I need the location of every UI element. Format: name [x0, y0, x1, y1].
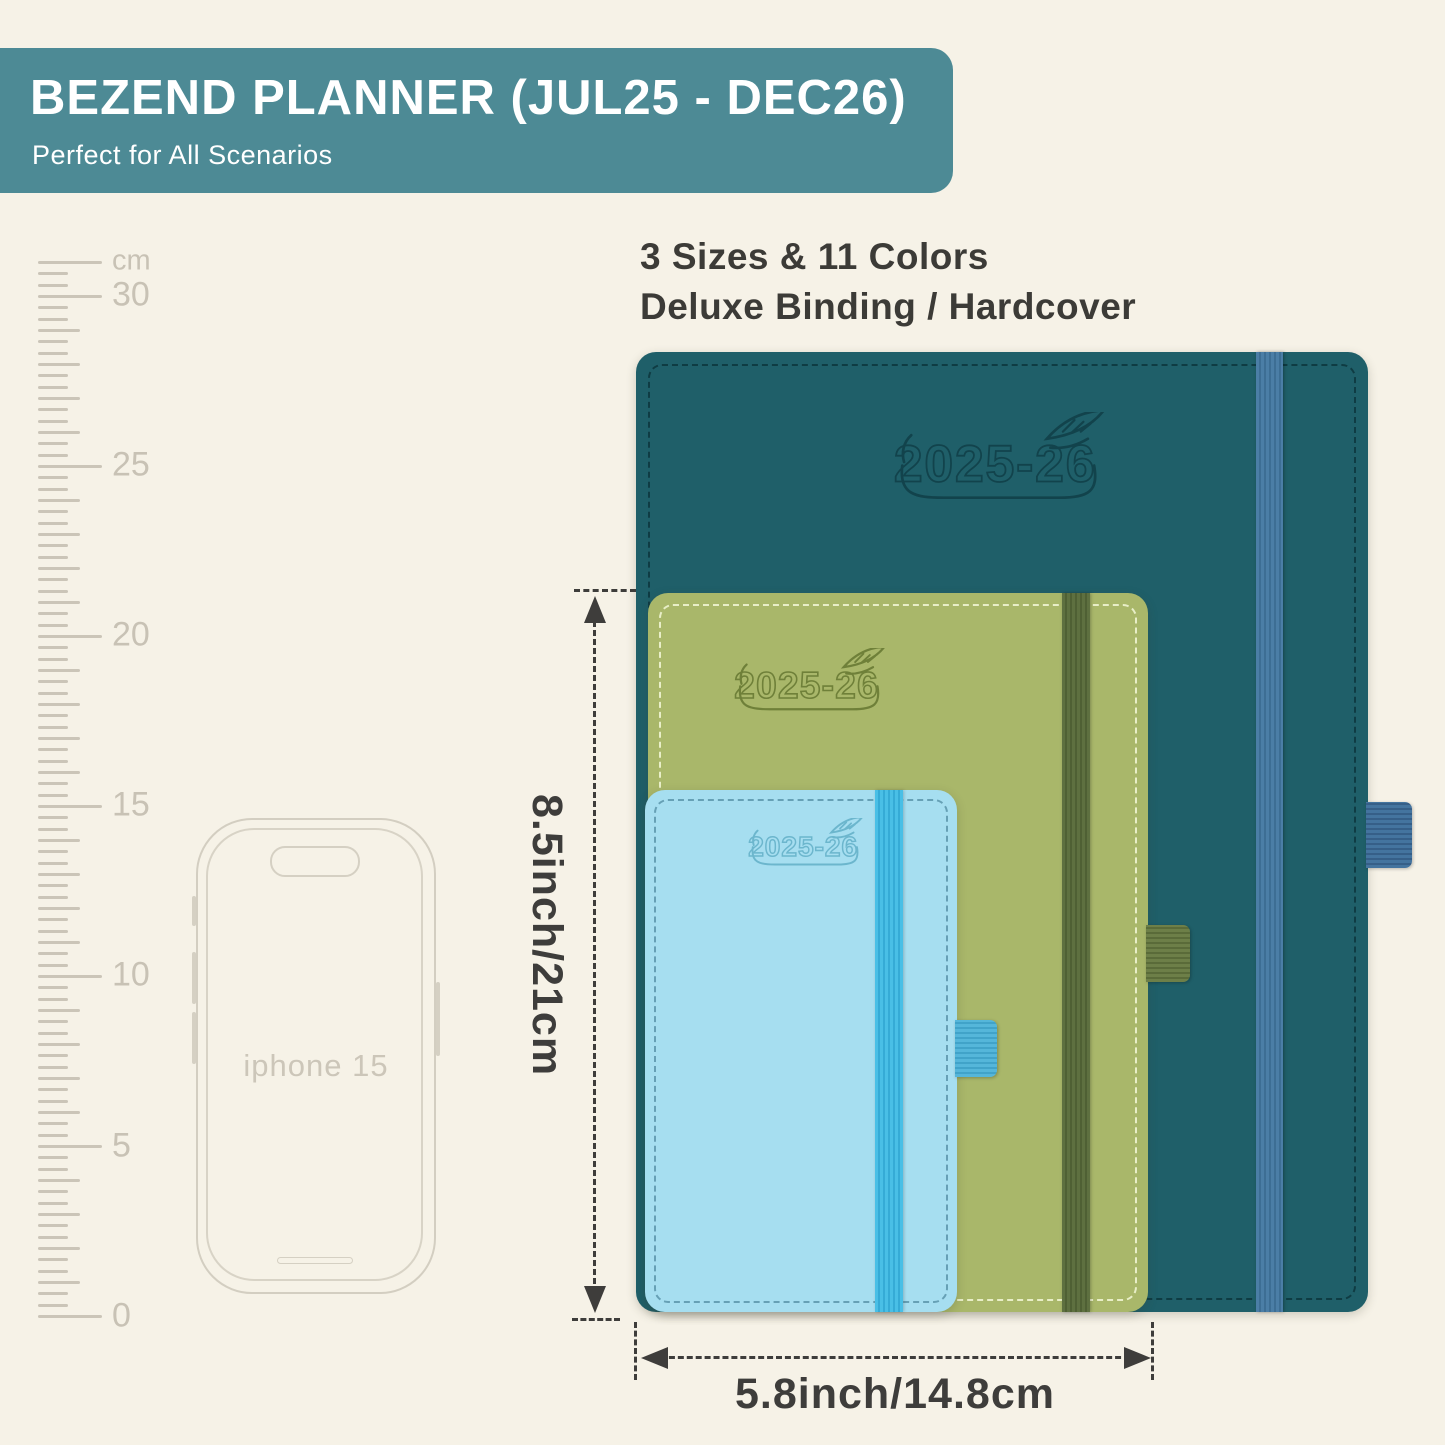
ruler-tick [38, 1315, 102, 1318]
ruler-tick [38, 476, 68, 479]
ruler-tick [38, 578, 68, 581]
ruler-tick [38, 964, 68, 967]
ruler-tick [38, 1270, 68, 1273]
ruler-tick [38, 397, 80, 400]
ruler-tick [38, 1304, 68, 1307]
ruler-tick [38, 1043, 80, 1046]
ruler-tick [38, 635, 102, 638]
ruler-tick [38, 714, 68, 717]
ruler-tick [38, 408, 68, 411]
ruler-tick [38, 930, 68, 933]
ruler-label-0: 0 [112, 1297, 131, 1336]
ruler-label-20: 20 [112, 616, 150, 655]
phone-volume-down-button [192, 1012, 196, 1064]
ruler-label-10: 10 [112, 956, 150, 995]
logo-year: 2025-26 [748, 831, 858, 862]
ruler-tick [38, 465, 102, 468]
ruler: cm302520151050 [0, 0, 200, 1445]
ruler-tick [38, 760, 68, 763]
height-dim-line [593, 612, 596, 1302]
ruler-tick [38, 748, 68, 751]
ruler-tick [38, 1122, 68, 1125]
ruler-tick [38, 703, 80, 706]
ruler-tick [38, 567, 80, 570]
ruler-tick [38, 1156, 68, 1159]
ruler-tick [38, 850, 68, 853]
planner-logo: 2025-26 [730, 648, 896, 714]
ruler-tick [38, 386, 68, 389]
ruler-tick [38, 306, 68, 309]
ruler-tick [38, 828, 68, 831]
ruler-label-cm: cm [112, 245, 151, 278]
elastic-band [1062, 593, 1090, 1312]
ruler-tick [38, 918, 68, 921]
ruler-tick [38, 896, 68, 899]
logo-year: 2025-26 [734, 664, 879, 706]
ruler-tick [38, 998, 68, 1001]
phone-label: iphone 15 [198, 1048, 434, 1084]
ruler-tick [38, 737, 80, 740]
ruler-tick [38, 510, 68, 513]
ruler-tick [38, 318, 68, 321]
ruler-tick [38, 533, 80, 536]
height-dim-bottom-tick [572, 1318, 620, 1321]
width-dim-label: 5.8inch/14.8cm [695, 1370, 1095, 1419]
ruler-tick [38, 1213, 80, 1216]
ruler-tick [38, 1134, 68, 1137]
logo-year: 2025-26 [894, 435, 1096, 493]
ruler-tick [38, 352, 68, 355]
ruler-tick [38, 1032, 68, 1035]
ruler-tick [38, 363, 80, 366]
ruler-tick [38, 1236, 68, 1239]
ruler-tick [38, 1100, 68, 1103]
ruler-tick [38, 1020, 68, 1023]
ruler-tick [38, 941, 80, 944]
ruler-tick [38, 442, 68, 445]
width-dim-left-tick [634, 1322, 637, 1380]
ruler-tick [38, 556, 68, 559]
width-dim-line [660, 1356, 1130, 1359]
ruler-tick [38, 420, 68, 423]
ruler-tick [38, 544, 68, 547]
ruler-tick [38, 601, 80, 604]
ruler-tick [38, 590, 68, 593]
product-image-canvas: BEZEND PLANNER (JUL25 - DEC26) Perfect f… [0, 0, 1445, 1445]
stitching [654, 799, 948, 1303]
ruler-tick [38, 1009, 80, 1012]
ruler-tick [38, 272, 68, 275]
ruler-tick [38, 726, 68, 729]
phone-home-bar [277, 1257, 353, 1264]
ruler-label-15: 15 [112, 786, 150, 825]
ruler-tick [38, 1190, 68, 1193]
ruler-tick [38, 1077, 80, 1080]
ruler-tick [38, 873, 80, 876]
ruler-tick [38, 261, 102, 264]
phone-dynamic-island [270, 846, 360, 877]
ruler-tick [38, 340, 68, 343]
height-dim-arrow-down [584, 1286, 606, 1313]
ruler-tick [38, 816, 68, 819]
ruler-tick [38, 646, 68, 649]
headline: 3 Sizes & 11 Colors Deluxe Binding / Har… [640, 232, 1136, 332]
ruler-tick [38, 782, 68, 785]
ruler-tick [38, 1292, 68, 1295]
height-dim-label: 8.5inch/21cm [527, 785, 571, 1085]
ruler-tick [38, 1224, 68, 1227]
ruler-tick [38, 1066, 68, 1069]
ruler-tick [38, 1054, 68, 1057]
phone-mute-button [192, 896, 196, 926]
ruler-tick [38, 1145, 102, 1148]
ruler-tick [38, 771, 80, 774]
ruler-tick [38, 1179, 80, 1182]
ruler-tick [38, 907, 80, 910]
ruler-label-5: 5 [112, 1127, 131, 1166]
phone-volume-up-button [192, 952, 196, 1004]
headline-line2: Deluxe Binding / Hardcover [640, 282, 1136, 332]
planner-small: 2025-26 [645, 790, 957, 1312]
ruler-tick [38, 499, 80, 502]
ruler-tick [38, 1168, 68, 1171]
ruler-tick [38, 295, 102, 298]
ruler-tick [38, 1202, 68, 1205]
ruler-tick [38, 612, 68, 615]
ruler-tick [38, 1258, 68, 1261]
ruler-label-25: 25 [112, 446, 150, 485]
ruler-tick [38, 454, 68, 457]
ruler-tick [38, 794, 68, 797]
ruler-tick [38, 374, 68, 377]
height-dim-arrow-up [584, 596, 606, 623]
planner-logo: 2025-26 [745, 818, 871, 868]
width-dim-arrow-right [1124, 1347, 1151, 1369]
ruler-tick [38, 1247, 80, 1250]
elastic-band [875, 790, 903, 1312]
phone-outline: iphone 15 [196, 818, 436, 1294]
ruler-tick [38, 952, 68, 955]
headline-line1: 3 Sizes & 11 Colors [640, 232, 1136, 282]
elastic-band [1256, 352, 1283, 1312]
ruler-label-30: 30 [112, 276, 150, 315]
ruler-tick [38, 839, 80, 842]
ruler-tick [38, 431, 80, 434]
ruler-tick [38, 692, 68, 695]
height-dim-top-tick [574, 589, 636, 592]
ruler-tick [38, 862, 68, 865]
ruler-tick [38, 975, 102, 978]
ruler-tick [38, 624, 68, 627]
ruler-tick [38, 329, 80, 332]
phone-power-button [436, 982, 440, 1056]
pen-loop [955, 1020, 997, 1077]
ruler-tick [38, 669, 80, 672]
pen-loop [1146, 925, 1190, 982]
ruler-tick [38, 1281, 80, 1284]
ruler-tick [38, 284, 68, 287]
width-dim-right-tick [1151, 1322, 1154, 1380]
ruler-tick [38, 805, 102, 808]
ruler-tick [38, 986, 68, 989]
ruler-tick [38, 1088, 68, 1091]
planner-logo: 2025-26 [888, 412, 1120, 505]
width-dim-arrow-left [641, 1347, 668, 1369]
ruler-tick [38, 658, 68, 661]
ruler-tick [38, 680, 68, 683]
pen-loop [1366, 802, 1412, 868]
ruler-tick [38, 1111, 80, 1114]
ruler-tick [38, 522, 68, 525]
ruler-tick [38, 884, 68, 887]
ruler-tick [38, 488, 68, 491]
